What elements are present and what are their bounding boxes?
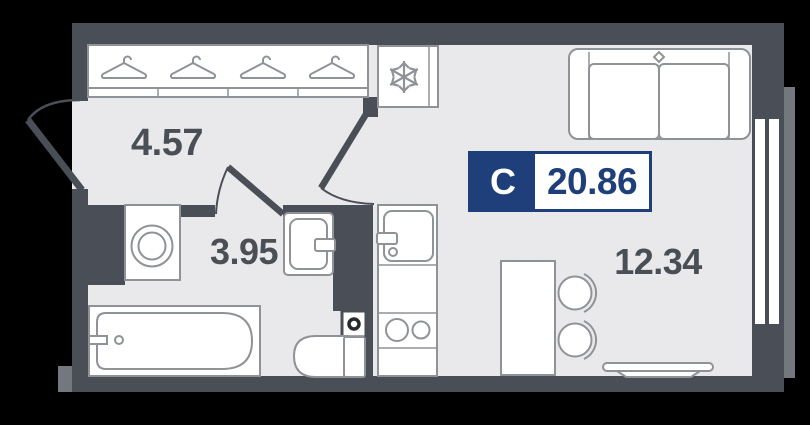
wall-mid-strip [363, 311, 373, 392]
entry-floor [72, 101, 88, 189]
wall-left-lower [72, 189, 88, 392]
wall-bottom [72, 376, 784, 392]
hallway-area-label: 4.57 [117, 124, 217, 162]
wall-bath-north-1 [180, 205, 215, 217]
wall-left-upper [72, 23, 88, 101]
area-badge: С 20.86 [468, 151, 652, 212]
wall-bath-corner-block [88, 205, 125, 285]
bathroom-area-label: 3.95 [194, 234, 294, 270]
wall-top [72, 23, 784, 45]
wall-right [752, 23, 784, 392]
wall-mid-block [333, 205, 373, 311]
living-area-label: 12.34 [603, 244, 713, 280]
bath-door-gap [215, 205, 283, 217]
wall-door-stub [363, 97, 378, 117]
total-area-value: 20.86 [535, 154, 649, 209]
outer-sill-right [784, 87, 795, 378]
floor-plan: 4.57 3.95 12.34 С 20.86 [0, 0, 810, 425]
outer-step-bottom-left [58, 366, 72, 392]
unit-type-label: С [471, 154, 535, 209]
wall-bath-north-2 [283, 205, 333, 217]
